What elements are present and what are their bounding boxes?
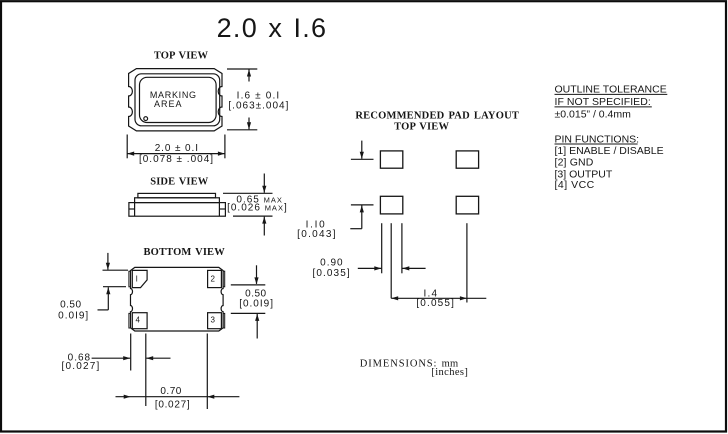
svg-text:[0.027]: [0.027] <box>62 361 101 372</box>
svg-text:0.90: 0.90 <box>320 258 343 269</box>
svg-text:[.063±.004]: [.063±.004] <box>228 101 289 112</box>
svg-text:AREA: AREA <box>154 99 183 109</box>
svg-text:[0.043]: [0.043] <box>297 229 337 240</box>
svg-text:±0.015” / 0.4mm: ±0.015” / 0.4mm <box>555 108 632 120</box>
svg-text:[0.0I9]: [0.0I9] <box>239 299 274 310</box>
svg-text:I: I <box>136 275 138 284</box>
svg-text:[0.035]: [0.035] <box>312 268 350 279</box>
svg-text:BOTTOM VIEW: BOTTOM VIEW <box>144 247 226 258</box>
svg-text:OUTLINE TOLERANCE: OUTLINE TOLERANCE <box>555 84 667 96</box>
svg-text:2.0 x I.6: 2.0 x I.6 <box>217 13 328 43</box>
svg-text:4: 4 <box>135 315 140 324</box>
svg-text:2: 2 <box>210 275 215 284</box>
svg-text:3: 3 <box>210 315 215 324</box>
svg-text:SIDE VIEW: SIDE VIEW <box>150 177 208 188</box>
svg-text:TOP VIEW: TOP VIEW <box>394 121 449 132</box>
svg-text:DIMENSIONS:: DIMENSIONS: <box>360 359 438 370</box>
svg-text:0.0I9]: 0.0I9] <box>58 311 89 322</box>
svg-text:2.0 ± 0.I: 2.0 ± 0.I <box>155 143 199 154</box>
svg-text:[0.027]: [0.027] <box>155 399 190 410</box>
svg-text:[inches]: [inches] <box>431 367 468 378</box>
svg-text:[0.055]: [0.055] <box>416 298 455 309</box>
svg-text:[2] GND: [2] GND <box>555 157 594 169</box>
svg-text:[0.078 ± .004]: [0.078 ± .004] <box>139 154 214 165</box>
svg-text:0.50: 0.50 <box>60 300 81 311</box>
svg-text:0.70: 0.70 <box>160 386 181 397</box>
svg-text:[4] VCC: [4] VCC <box>555 179 595 191</box>
svg-text:IF NOT SPECIFIED:: IF NOT SPECIFIED: <box>555 96 651 108</box>
svg-text:[1] ENABLE / DISABLE: [1] ENABLE / DISABLE <box>555 145 664 157</box>
svg-text:TOP VIEW: TOP VIEW <box>154 50 209 61</box>
svg-text:RECOMMENDED PAD LAYOUT: RECOMMENDED PAD LAYOUT <box>355 111 519 122</box>
svg-text:[0.026 MAX]: [0.026 MAX] <box>227 203 288 214</box>
